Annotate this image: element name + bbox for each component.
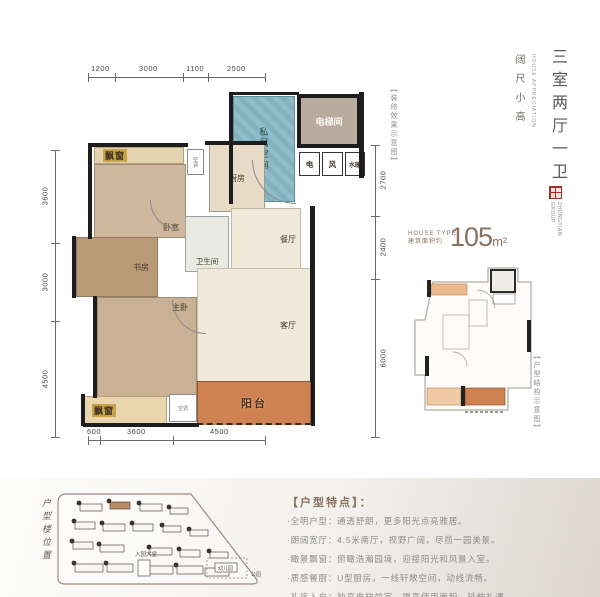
room-living-label: 客厅 (280, 320, 296, 331)
room-wind-label: 风 (329, 159, 337, 170)
dim-line-right (375, 145, 376, 437)
dim-label-bottom-2: 3600 (127, 427, 146, 436)
site-lobby-label: 入园大堂 (135, 550, 158, 558)
wall-segment (205, 141, 267, 145)
dim-tick (208, 73, 209, 82)
dim-label-right-1: 2700 (379, 171, 388, 190)
dim-tick (88, 73, 89, 82)
dim-label-left-3: 4500 (41, 370, 50, 389)
site-kindergarten-label: 幼儿园 (218, 565, 233, 572)
dim-tick (51, 150, 60, 151)
feature-item: ·朗阔宽厅：4.5米南厅，视野广阔，尽揽一园美景。 (287, 531, 514, 550)
room-ac-bottom-label: 空调 (178, 405, 188, 412)
feature-item: ·全明户型：通透舒朗，更多阳光点亮雅居。 (287, 512, 514, 531)
dim-label-top-2: 3000 (139, 64, 158, 73)
dim-label-top-1: 1200 (91, 64, 110, 73)
bottom-band: 户型楼位置 入园大堂 (0, 478, 600, 597)
dim-tick (51, 437, 60, 438)
dim-tick (100, 436, 101, 445)
room-ac-bottom: 空调 (169, 394, 197, 422)
wall-segment (72, 236, 76, 298)
wall-segment (229, 92, 299, 95)
page-title-vertical: 三室两厅一卫 (545, 48, 569, 188)
dim-label-left-1: 3600 (41, 187, 50, 206)
dim-tick (371, 145, 380, 146)
dim-tick (371, 216, 380, 217)
room-bathroom: 卫生间 (185, 216, 229, 272)
render-note: 【装修效果示意图】 (388, 85, 398, 195)
mini-floorplan-drawing (413, 260, 543, 425)
wall-segment (93, 296, 97, 398)
site-plan: 入园大堂 幼儿园 公园 (55, 490, 270, 588)
wall-segment (310, 206, 315, 382)
dim-tick (371, 279, 380, 280)
wall-segment (88, 143, 188, 147)
room-balcony: 阳台 (197, 381, 311, 425)
dim-tick (265, 73, 266, 82)
dim-label-right-2: 2400 (379, 238, 388, 257)
wall-segment (83, 423, 199, 427)
wall-segment (359, 92, 364, 178)
area-value: 105 (450, 222, 492, 252)
features-title: 【户型特点】： (287, 494, 373, 510)
area-figure: 105m² (450, 222, 507, 253)
room-ac-top-label: 空调 (192, 157, 199, 167)
room-elevator: 电梯间 (297, 94, 361, 148)
room-wind: 风 (322, 152, 343, 176)
room-study-label: 书房 (133, 262, 149, 273)
floorplan-poster: 1200 3000 1100 2500 3600 3000 4500 2700 … (0, 0, 600, 597)
mini-floorplan (413, 260, 543, 425)
room-bay-window-top-label: 飘窗 (103, 149, 127, 162)
dim-tick (371, 437, 380, 438)
site-plan-drawing: 入园大堂 幼儿园 公园 (55, 490, 270, 588)
dim-label-bottom-3: 4500 (210, 427, 229, 436)
mini-plan-note: 【户型结构示意图】 (531, 352, 541, 432)
wall-segment (311, 380, 315, 426)
dim-tick (88, 436, 89, 445)
dim-label-right-3: 6000 (379, 349, 388, 368)
room-electric-label: 电 (306, 159, 314, 170)
room-dining: 餐厅 (231, 208, 301, 270)
features-list: ·全明户型：通透舒朗，更多阳光点亮雅居。 ·朗阔宽厅：4.5米南厅，视野广阔，尽… (287, 512, 514, 597)
zhongtian-seal-icon (549, 186, 562, 199)
dim-tick (265, 436, 266, 445)
room-bathroom-label: 卫生间 (196, 256, 219, 267)
subtitle-vertical: 阔尺小高 (511, 54, 526, 144)
dim-line-left (55, 150, 56, 437)
area-unit: m² (492, 234, 507, 249)
room-dining-label: 餐厅 (280, 234, 296, 245)
room-electric: 电 (299, 152, 320, 176)
wall-segment (88, 143, 92, 239)
subtitle-english: HOUSE APPRECIATION (530, 54, 536, 164)
feature-item: ·瞰景飘窗：俯瞰浩瀚园境，迎接阳光和风景入室。 (287, 550, 514, 569)
dim-tick (173, 436, 174, 445)
brand-english: ZHONGTIAN GROUP (548, 202, 562, 250)
site-label-vertical: 户型楼位置 (40, 498, 53, 578)
dim-tick (183, 73, 184, 82)
wall-segment (81, 394, 85, 426)
feature-item: ·礼序入户：独享电梯前室，提高使用面积，延伸礼遇。 (287, 588, 514, 597)
room-elevator-label: 电梯间 (315, 115, 342, 128)
room-bay-window-top: 飘窗 (94, 147, 184, 164)
feature-item: ·质感餐厨：U型厨房，一线轩敞空间，动线流畅。 (287, 569, 514, 588)
dim-tick (51, 321, 60, 322)
room-living: 客厅 (197, 268, 311, 382)
dim-label-bottom-1: 600 (87, 427, 101, 436)
room-study: 书房 (76, 237, 158, 297)
dim-label-left-2: 3000 (41, 273, 50, 292)
room-bay-window-bottom: 飘窗 (83, 396, 167, 425)
room-balcony-label: 阳台 (241, 395, 267, 411)
room-ac-top: 空调 (187, 149, 204, 175)
dim-line-bottom (88, 440, 265, 441)
wall-segment (229, 94, 233, 204)
dim-label-top-4: 2500 (227, 64, 246, 73)
site-park-label: 公园 (251, 572, 261, 578)
dim-tick (115, 73, 116, 82)
dim-tick (51, 243, 60, 244)
dim-label-top-3: 1100 (186, 64, 204, 73)
room-bay-window-bottom-label: 飘窗 (92, 404, 116, 417)
